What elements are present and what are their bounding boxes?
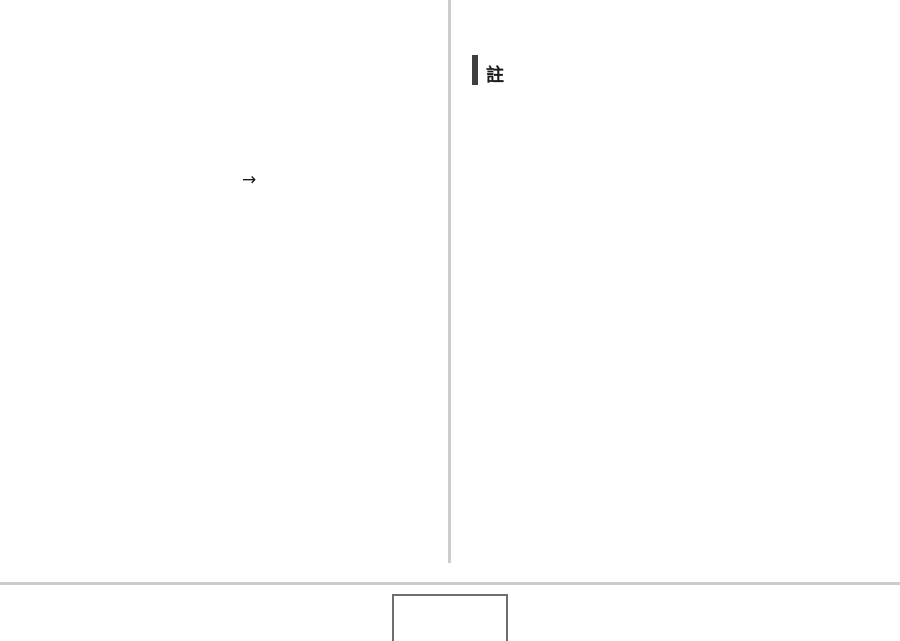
- document-page: → 註: [0, 0, 900, 641]
- note-heading-label: 註: [486, 67, 504, 85]
- right-arrow-glyph: →: [242, 172, 256, 189]
- note-heading-bar: [472, 55, 478, 85]
- note-heading: 註: [472, 55, 504, 85]
- page-number-box: [392, 594, 508, 641]
- column-divider: [448, 0, 451, 563]
- footer-rule: [0, 582, 900, 585]
